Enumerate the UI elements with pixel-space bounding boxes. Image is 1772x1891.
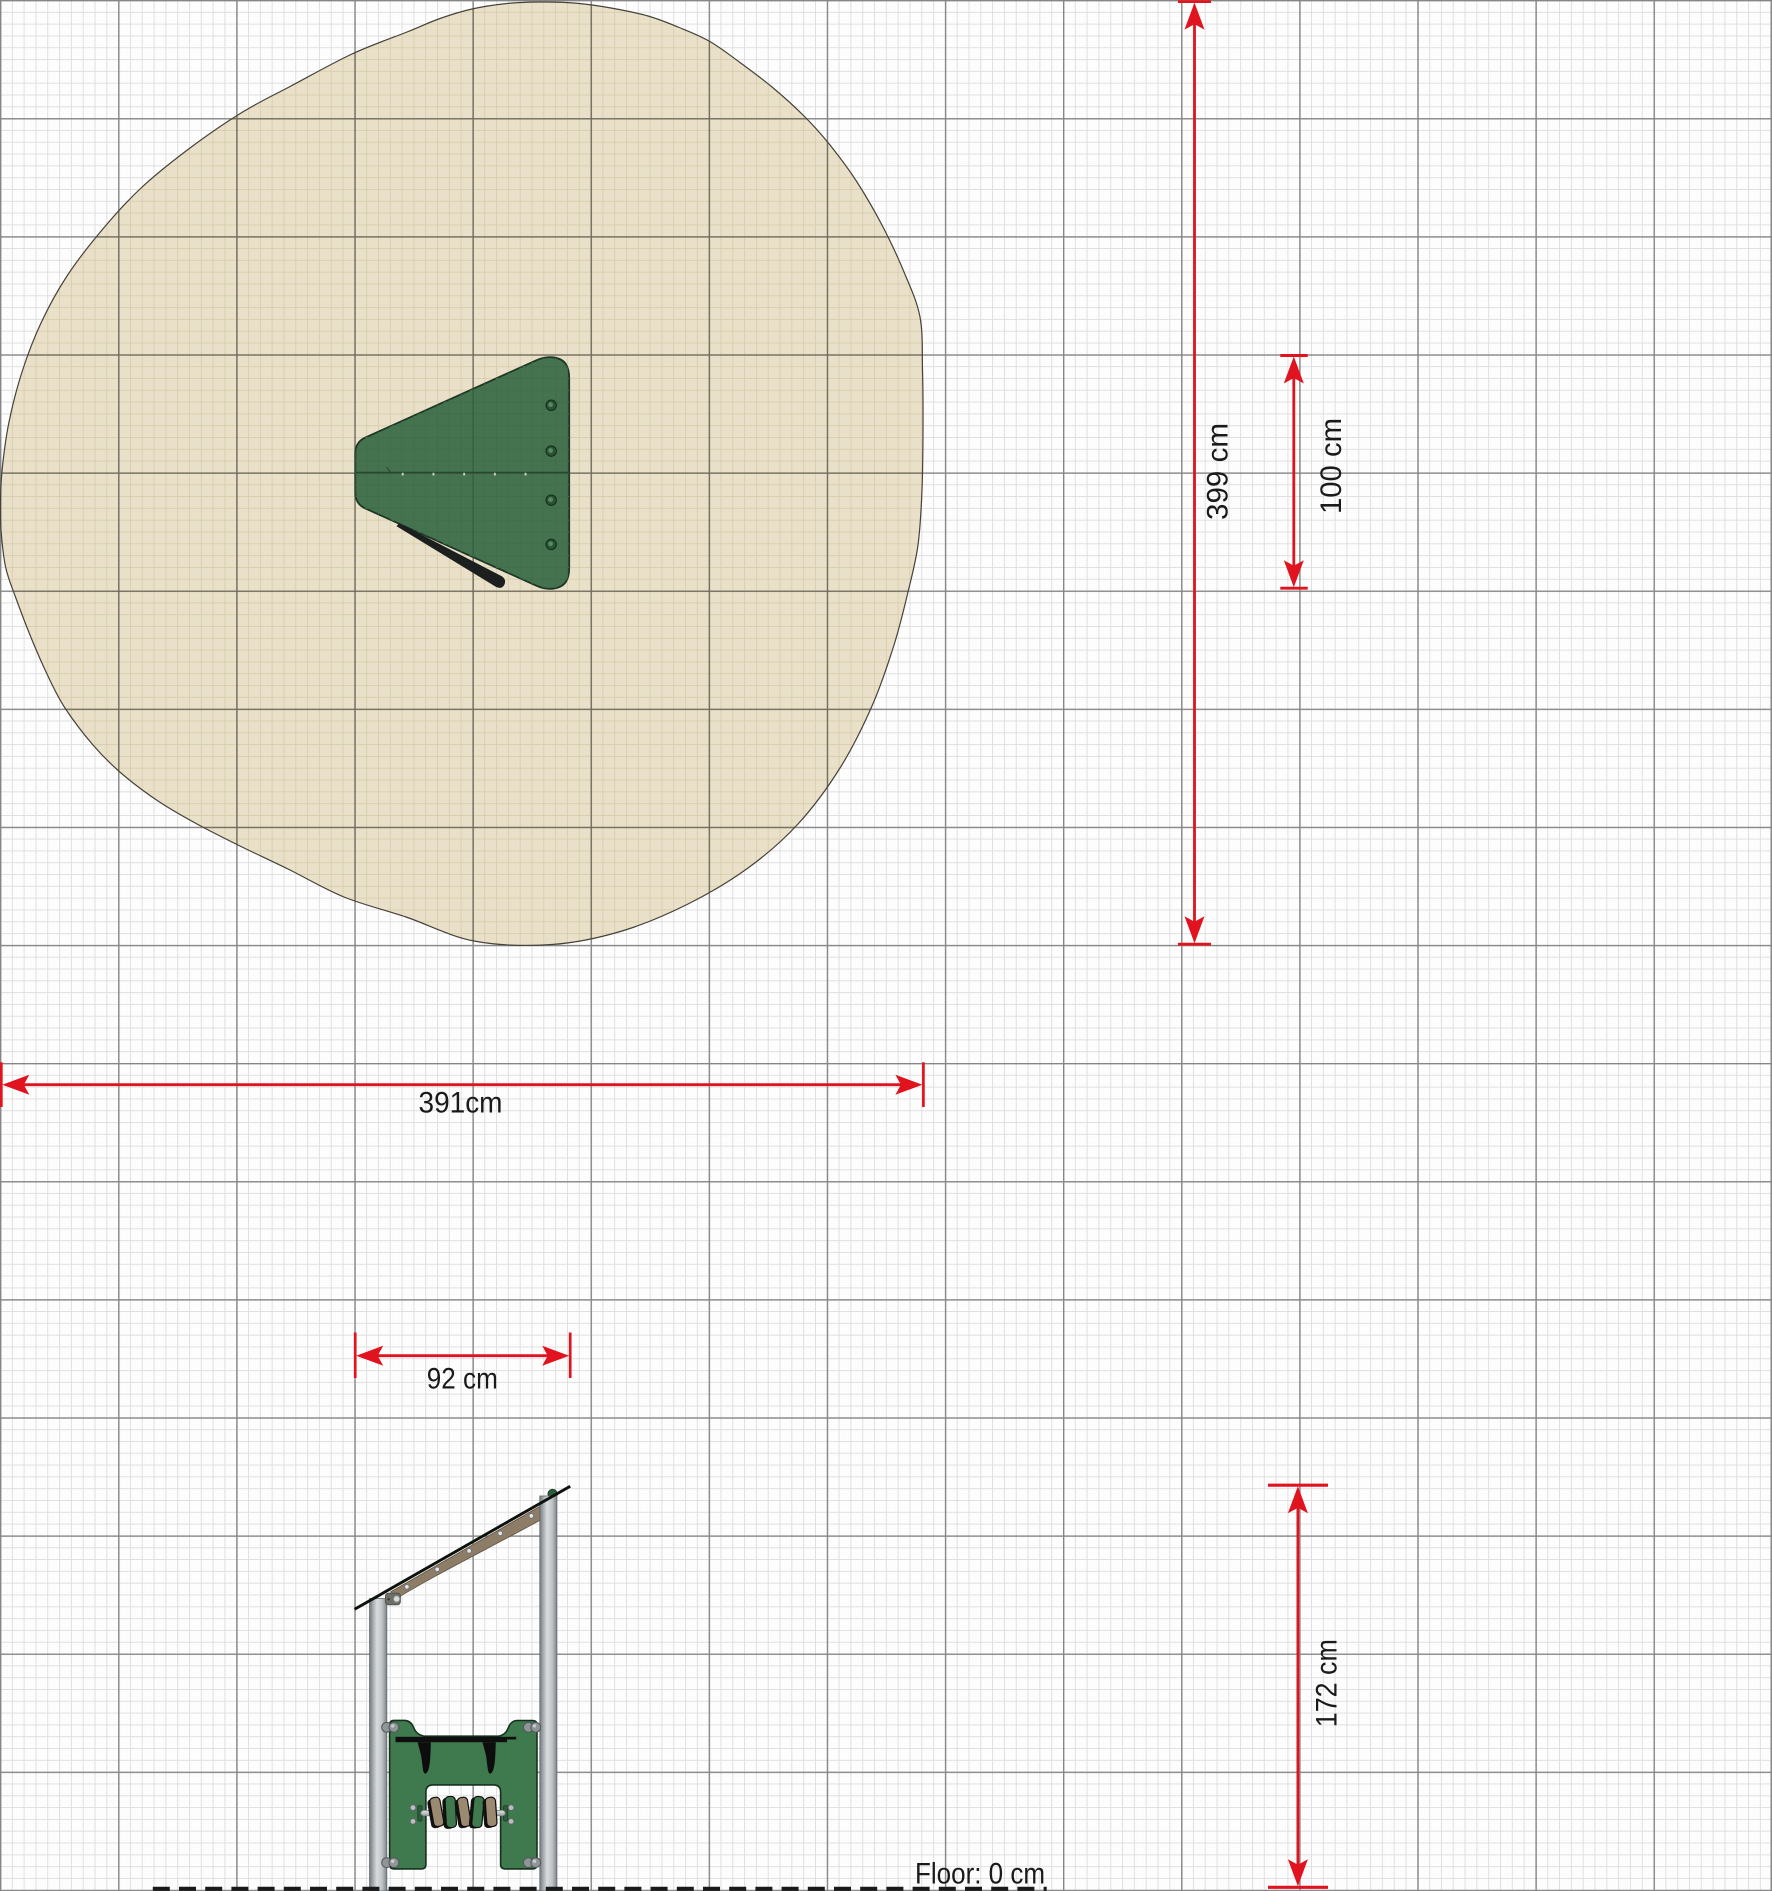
svg-text:92 cm: 92 cm [427, 1363, 498, 1396]
svg-text:Floor: 0 cm: Floor: 0 cm [915, 1858, 1045, 1891]
svg-text:399 cm: 399 cm [1202, 423, 1235, 520]
svg-text:172 cm: 172 cm [1311, 1639, 1344, 1727]
svg-text:100 cm: 100 cm [1315, 418, 1348, 514]
svg-text:391cm: 391cm [419, 1087, 503, 1120]
